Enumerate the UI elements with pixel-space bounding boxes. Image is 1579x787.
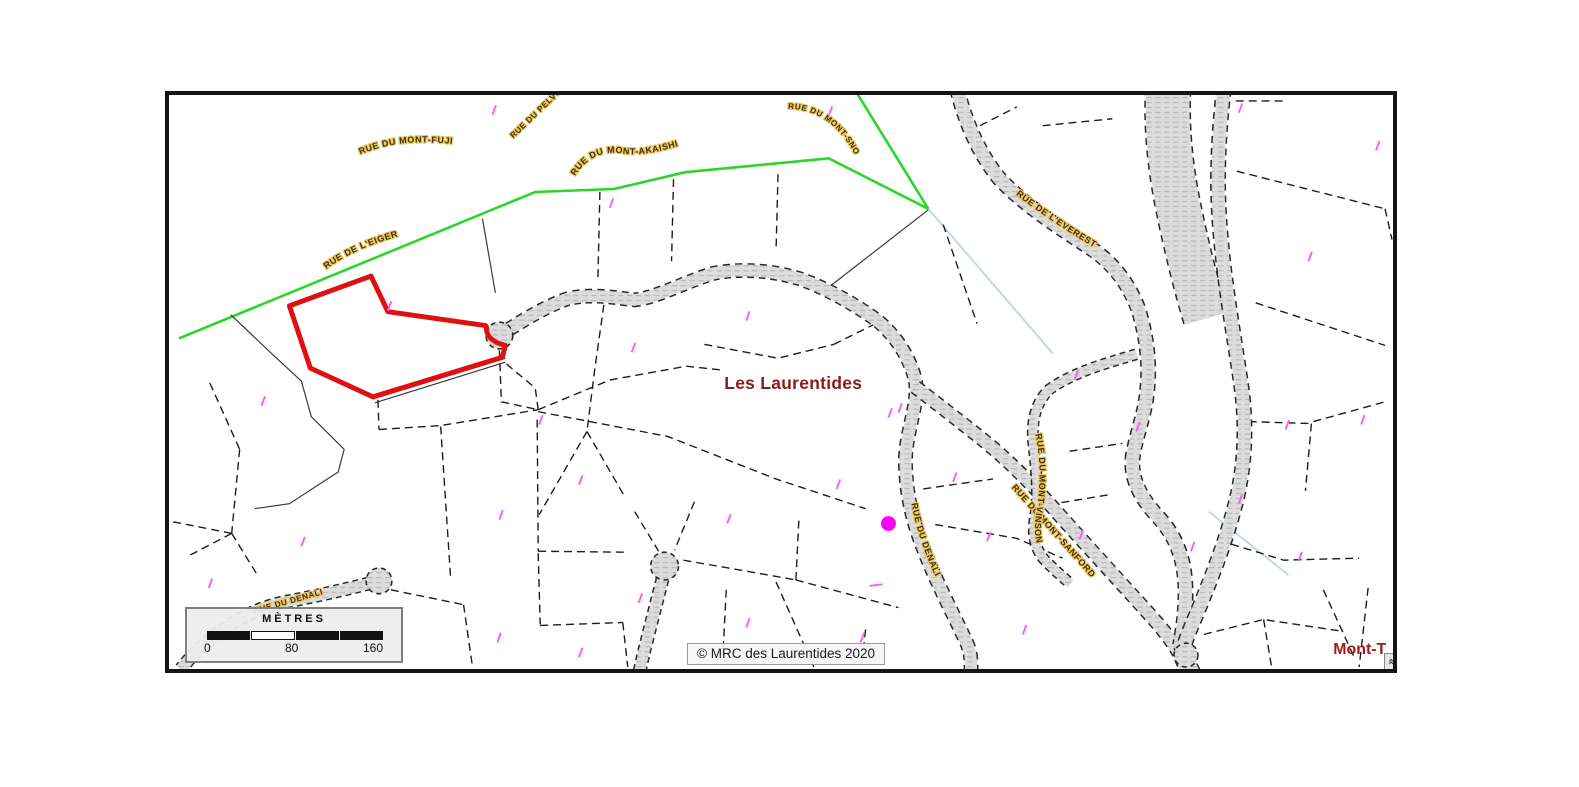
map-viewport[interactable]: RUE DU MONT-FUJI RUE DU PELVOUX RUE DU M…	[165, 91, 1397, 673]
scale-segment	[207, 631, 250, 640]
scale-segment	[251, 631, 294, 640]
selected-parcel-outline[interactable]	[289, 276, 505, 397]
scale-bar-ticks: 0 80 160	[187, 641, 405, 657]
edge-label-mont-t: Mont-T	[1333, 641, 1386, 658]
page: RUE DU MONT-FUJI RUE DU PELVOUX RUE DU M…	[0, 0, 1579, 787]
scale-bar: MÈTRES 0 80 160	[185, 607, 403, 663]
street-label-pelvoux: RUE DU PELVOUX	[508, 95, 572, 140]
region-label: Les Laurentides	[724, 373, 862, 393]
scale-segment	[340, 631, 383, 640]
attribution-label: © MRC des Laurentides 2020	[687, 643, 885, 665]
street-label-mont-snow: RUE DU MONT-SNOW	[169, 95, 861, 156]
street-label-mont-akaishi: RUE DU MONT-AKAISHI	[568, 138, 679, 177]
scale-tick-160: 160	[363, 641, 383, 655]
scale-segment	[296, 631, 339, 640]
street-label-mont-fuji: RUE DU MONT-FUJI	[357, 134, 453, 156]
street-label-everest: RUE DE L'EVEREST	[1015, 188, 1099, 249]
parcel-map-canvas[interactable]: RUE DU MONT-FUJI RUE DU PELVOUX RUE DU M…	[169, 95, 1393, 669]
scale-tick-80: 80	[285, 641, 298, 655]
corner-scroll-button[interactable]: «	[1384, 653, 1397, 670]
scale-tick-0: 0	[204, 641, 211, 655]
double-chevron-up-icon: «	[1386, 658, 1397, 665]
poi-dot[interactable]	[881, 516, 896, 531]
scale-bar-segments	[207, 631, 383, 640]
scale-bar-title: MÈTRES	[187, 613, 401, 625]
